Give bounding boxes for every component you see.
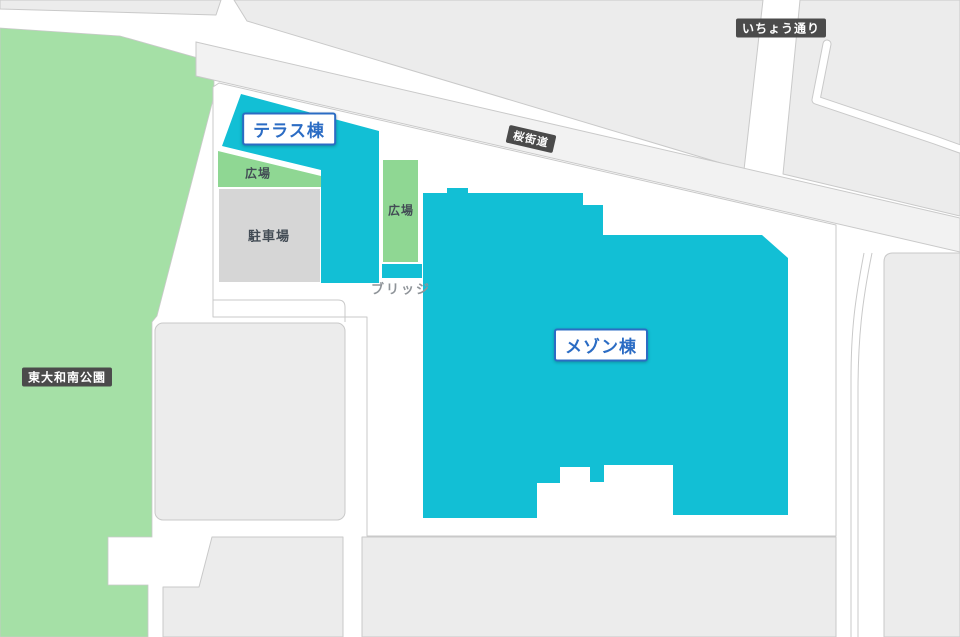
block-middle-left (155, 323, 345, 520)
parking-label: 駐車場 (248, 226, 290, 245)
terrace-building-badge[interactable]: テラス棟 (242, 113, 336, 146)
road-label-icho-dori: いちょう通り (736, 19, 826, 38)
park-label: 東大和南公園 (22, 368, 112, 387)
plaza-center-label: 広場 (388, 202, 414, 219)
plaza-west-label: 広場 (245, 165, 271, 182)
bridge-label: ブリッジ (371, 279, 431, 298)
bridge-shape (382, 264, 422, 278)
block-right (884, 253, 960, 637)
map-canvas (0, 0, 960, 637)
site-map: いちょう通り 桜街道 東大和南公園 テラス棟 メゾン棟 広場 広場 駐車場 ブリ… (0, 0, 960, 637)
block-bottom-center (362, 537, 836, 637)
maison-building-badge[interactable]: メゾン棟 (554, 329, 648, 362)
